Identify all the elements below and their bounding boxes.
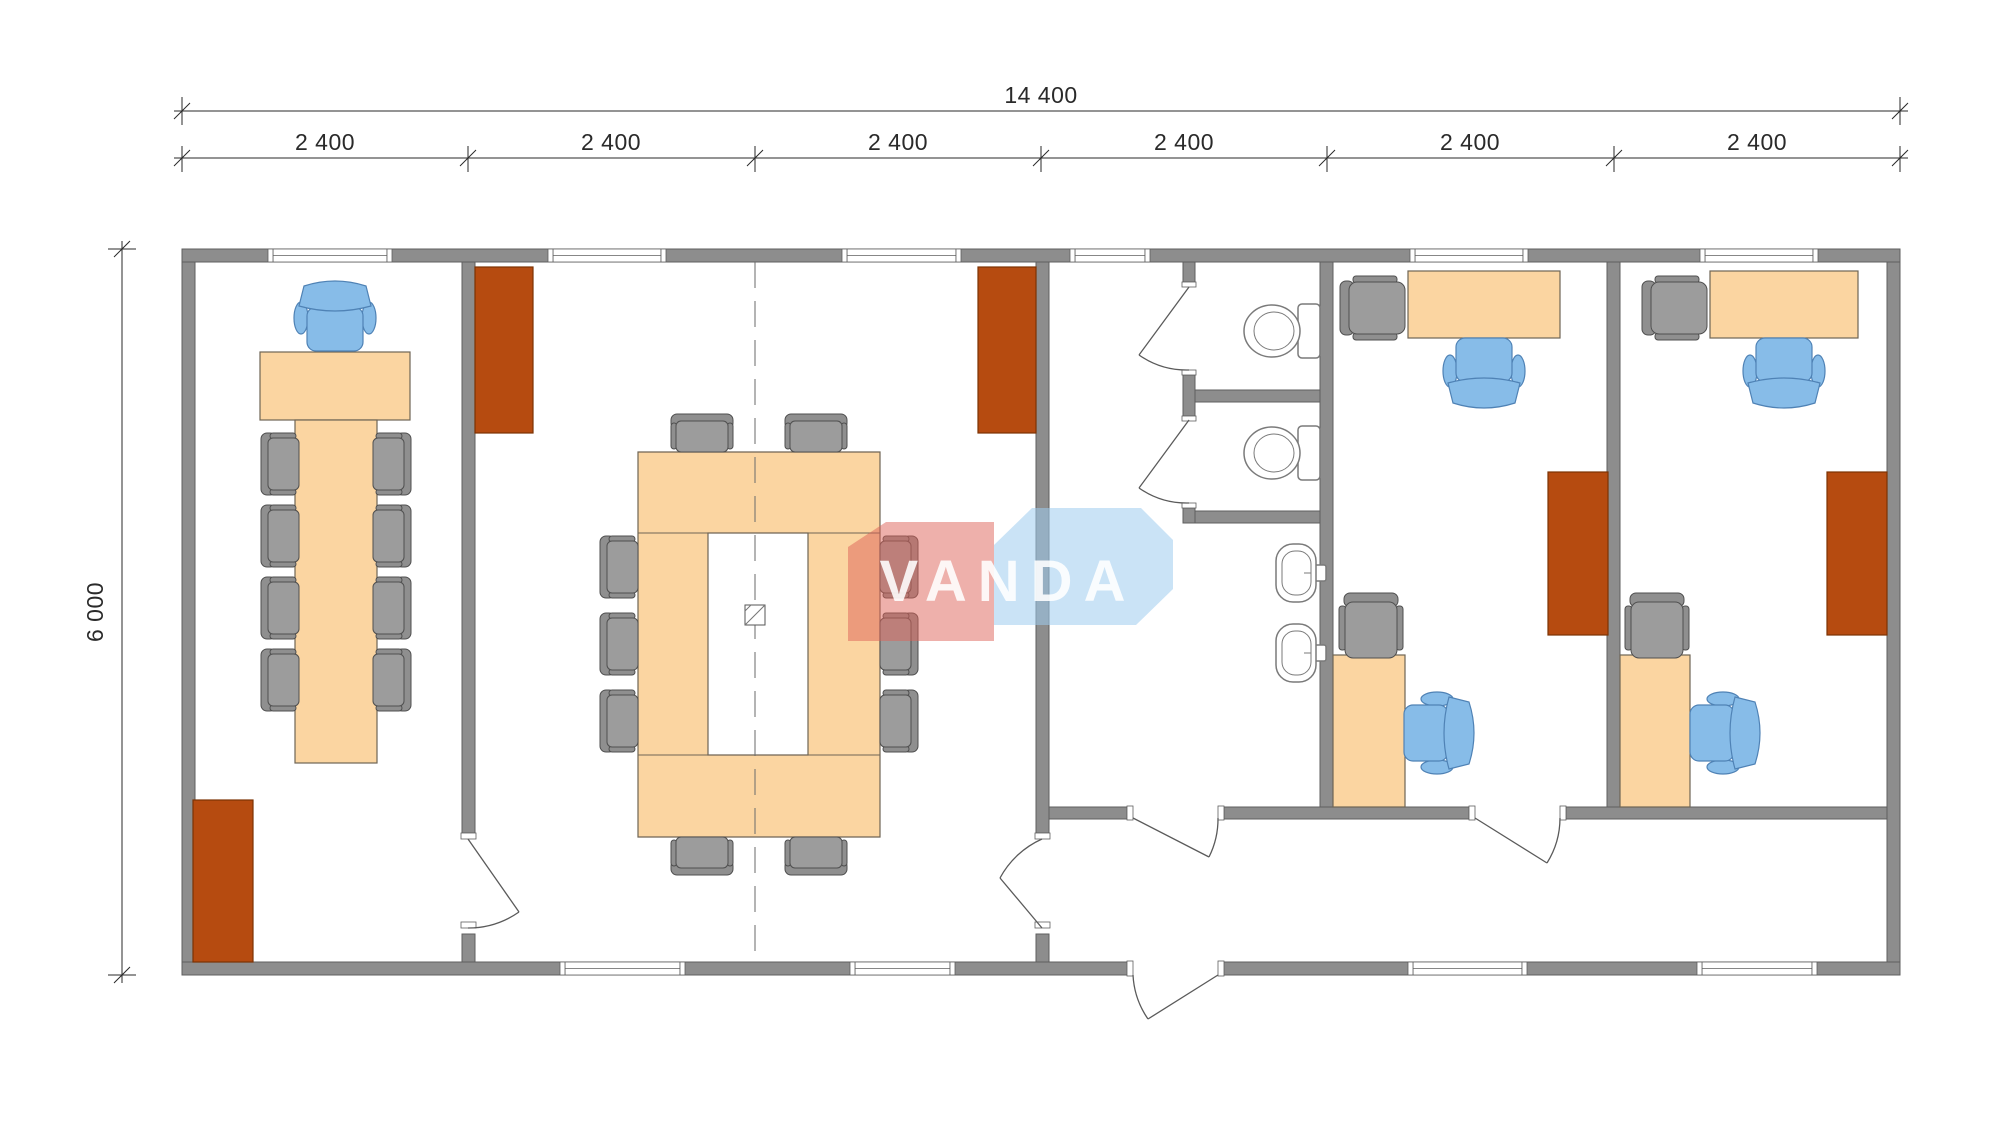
chair-gray: [880, 690, 918, 752]
chair-gray: [261, 505, 299, 567]
meeting-table: [295, 420, 377, 763]
door-wc-1: [1139, 287, 1189, 370]
dim-module-5-label: 2 400: [1440, 129, 1500, 155]
conference-table: [638, 452, 880, 837]
wall-wc-front-a: [1183, 262, 1195, 282]
dim-module-4-label: 2 400: [1154, 129, 1214, 155]
chair-gray: [373, 433, 411, 495]
dim-module-3-label: 2 400: [868, 129, 928, 155]
window: [842, 249, 961, 262]
window: [548, 249, 666, 262]
chair-gray: [600, 690, 638, 752]
sink-icon: [1276, 624, 1326, 682]
doors: [468, 818, 1560, 1019]
desk: [1710, 271, 1858, 338]
room-1-manager-office: [193, 281, 411, 962]
window: [268, 249, 392, 262]
wall-wc-divider-2: [1195, 511, 1320, 523]
chair-blue: [1404, 692, 1474, 774]
window: [1070, 249, 1150, 262]
wall-partition-1-stub: [462, 934, 475, 962]
watermark-logo: VANDA: [848, 508, 1173, 641]
door-room2: [1000, 839, 1042, 928]
floor-plan-drawing: 14 400 2 400 2 400 2 400 2 400 2 400 2 4…: [0, 0, 2000, 1147]
chair-gray: [785, 837, 847, 875]
wall-partition-3: [1320, 262, 1333, 819]
desk: [1408, 271, 1560, 338]
chair-gray: [261, 577, 299, 639]
entrance-opening: [1127, 961, 1224, 976]
wall-partition-4: [1607, 262, 1620, 819]
wall-top: [182, 249, 1900, 262]
cabinet: [1548, 472, 1608, 635]
logo-text: VANDA: [880, 549, 1137, 614]
chair-gray: [600, 536, 638, 598]
desk: [1333, 655, 1405, 807]
desk: [260, 352, 410, 420]
floor-plan-page: 14 400 2 400 2 400 2 400 2 400 2 400 2 4…: [0, 0, 2000, 1147]
dimension-top-total: 14 400: [174, 82, 1908, 125]
chair-gray: [373, 649, 411, 711]
chair-gray: [671, 837, 733, 875]
wall-bottom: [182, 962, 1900, 975]
wall-wc-front-c: [1183, 508, 1195, 523]
window: [850, 962, 955, 975]
cabinet: [978, 267, 1036, 433]
wall-corridor-b: [1224, 807, 1469, 819]
door-wc-2: [1139, 420, 1189, 503]
dim-module-1-label: 2 400: [295, 129, 355, 155]
cabinet: [1827, 472, 1887, 635]
wall-corridor-c: [1566, 807, 1887, 819]
door-corridor-wc: [1133, 818, 1218, 857]
door-main-entrance: [1133, 975, 1218, 1019]
wall-partition-2-stub: [1036, 934, 1049, 962]
room-3-sanitary-block: [1139, 287, 1326, 682]
window: [1410, 249, 1528, 262]
chair-gray: [600, 613, 638, 675]
dim-total-depth-label: 6 000: [82, 582, 108, 642]
desk: [1620, 655, 1690, 807]
wall-wc-divider-1: [1195, 390, 1320, 402]
dimension-top-modules: 2 400 2 400 2 400 2 400 2 400 2 400: [174, 129, 1908, 172]
wall-wc-front-b: [1183, 375, 1195, 416]
dim-module-6-label: 2 400: [1727, 129, 1787, 155]
door-corridor-office: [1475, 818, 1560, 863]
chair-gray: [261, 649, 299, 711]
chair-blue: [1443, 338, 1525, 408]
wall-partition-1: [462, 262, 475, 833]
sink-icon: [1276, 544, 1326, 602]
window: [1697, 962, 1817, 975]
cabinet: [193, 800, 253, 962]
chair-gray: [785, 414, 847, 452]
wall-right: [1887, 262, 1900, 962]
chair-gray: [261, 433, 299, 495]
window: [1408, 962, 1527, 975]
dimension-left-depth: 6 000: [82, 241, 136, 983]
chair-gray: [1340, 276, 1405, 340]
room-5-office: [1620, 271, 1887, 807]
window: [1700, 249, 1818, 262]
dim-total-width-label: 14 400: [1004, 82, 1077, 108]
chair-gray: [1625, 593, 1689, 658]
toilet-icon: [1244, 304, 1320, 358]
door-room1: [468, 839, 519, 928]
chair-blue: [1690, 692, 1760, 774]
toilet-icon: [1244, 426, 1320, 480]
chair-gray: [1642, 276, 1707, 340]
chair-gray: [1339, 593, 1403, 658]
chair-gray: [373, 577, 411, 639]
window: [560, 962, 685, 975]
chair-gray: [671, 414, 733, 452]
room-4-office: [1333, 271, 1608, 807]
cabinet: [475, 267, 533, 433]
module-joint-symbol: [745, 262, 765, 962]
chair-gray: [373, 505, 411, 567]
dim-module-2-label: 2 400: [581, 129, 641, 155]
wall-corridor-a: [1049, 807, 1127, 819]
chair-blue: [294, 281, 376, 351]
chair-blue: [1743, 338, 1825, 408]
